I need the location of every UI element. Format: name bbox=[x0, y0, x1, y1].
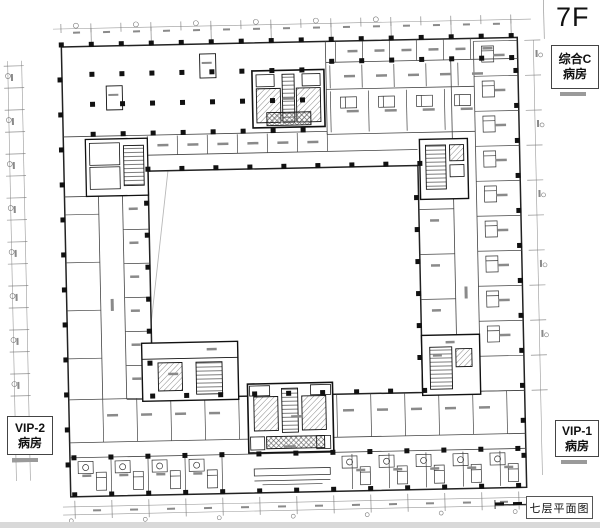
plan-title: 七层平面图 bbox=[526, 496, 593, 519]
ward-label-line1: VIP-2 bbox=[15, 421, 45, 436]
ward-label-line2: 病房 bbox=[565, 439, 589, 454]
ward-label-general-c: 综合C 病房 bbox=[551, 45, 599, 89]
plan-rotated-group bbox=[3, 0, 555, 524]
ward-label-vip1: VIP-1 病房 bbox=[555, 420, 599, 457]
ward-label-line2: 病房 bbox=[18, 436, 42, 451]
left-top-stair-cluster bbox=[85, 138, 148, 196]
drawing-sheet: 7F 综合C 病房 VIP-2 病房 VIP-1 病房 七层平面图 bbox=[0, 0, 600, 528]
ward-label-line1: VIP-1 bbox=[562, 424, 592, 439]
ward-label-vip2: VIP-2 病房 bbox=[7, 416, 53, 455]
ward-label-line2: 病房 bbox=[563, 67, 587, 82]
right-stair-core bbox=[419, 138, 468, 199]
beds-note-smudge bbox=[12, 458, 38, 462]
floor-number-label: 7F bbox=[556, 2, 590, 33]
floor-plan-drawing bbox=[0, 0, 600, 528]
sheet-edge-strip bbox=[0, 522, 600, 528]
bottom-right-stair-cluster bbox=[421, 334, 480, 395]
bottom-left-stair-cluster bbox=[142, 341, 239, 401]
beds-note-smudge bbox=[560, 92, 586, 96]
ward-label-line1: 综合C bbox=[559, 52, 592, 67]
beds-note-smudge bbox=[561, 460, 587, 464]
